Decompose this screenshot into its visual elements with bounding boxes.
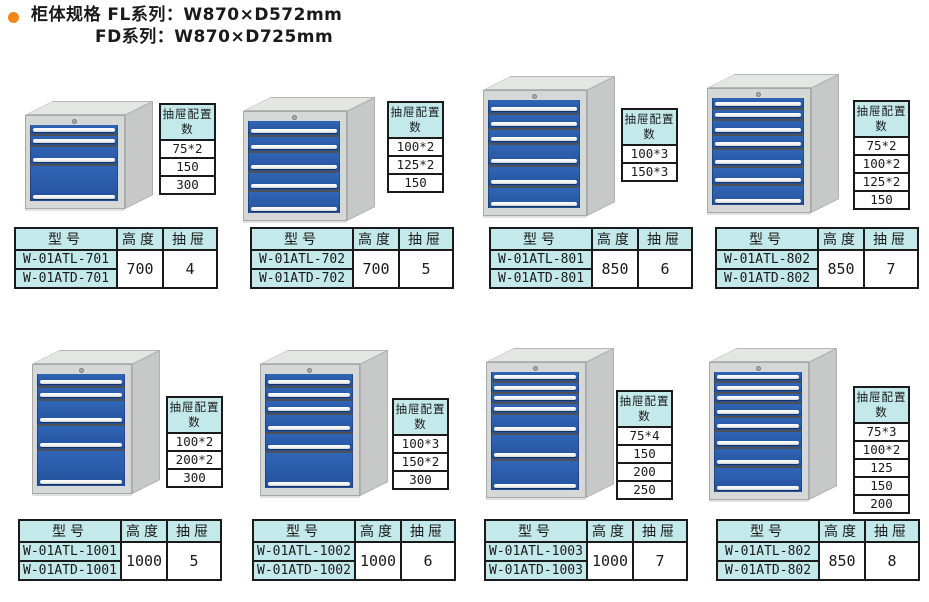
config-value-row: 100*3 xyxy=(623,146,676,164)
spec-table: 型号 高度 抽屉 W-01ATL-1002 1000 6 W-01ATD-100… xyxy=(252,519,456,581)
config-table: 抽屉配置数 75*4150200250 xyxy=(616,390,673,500)
config-table-header: 抽屉配置数 xyxy=(168,398,221,434)
drawer-handle-icon xyxy=(717,386,799,390)
model-b-cell: W-01ATD-802 xyxy=(717,561,819,580)
drawer xyxy=(37,401,125,424)
spec-table: 型号 高度 抽屉 W-01ATL-802 850 8 W-01ATD-802 xyxy=(716,519,920,581)
drawer xyxy=(265,415,353,432)
config-value-row: 75*2 xyxy=(161,141,214,159)
height-column-header: 高度 xyxy=(592,228,638,250)
drawer-stack xyxy=(265,374,353,488)
config-value-row: 300 xyxy=(394,472,447,488)
model-a-cell: W-01ATL-801 xyxy=(490,250,592,269)
height-column-header: 高度 xyxy=(117,228,163,250)
spec-table: 型号 高度 抽屉 W-01ATL-701 700 4 W-01ATD-701 xyxy=(14,227,218,289)
drawer xyxy=(37,374,125,386)
drawer-count-cell: 8 xyxy=(865,542,919,580)
config-value-row: 100*3 xyxy=(394,436,447,454)
drawer xyxy=(491,404,579,413)
drawer xyxy=(488,115,580,128)
cabinet-front-face xyxy=(243,111,347,221)
cabinet-side-face xyxy=(586,348,614,498)
drawer-stack xyxy=(712,98,804,205)
model-a-cell: W-01ATL-1003 xyxy=(485,542,587,561)
drawer xyxy=(714,404,802,416)
cabinet-side-face xyxy=(360,350,388,496)
drawer-handle-icon xyxy=(491,180,577,184)
height-cell: 1000 xyxy=(121,542,167,580)
drawer-stack xyxy=(30,125,118,201)
config-value-row: 100*2 xyxy=(855,156,908,174)
cabinet-illustration-1001 xyxy=(32,350,160,494)
drawer-handle-icon xyxy=(715,178,801,182)
drawer xyxy=(491,383,579,392)
drawer xyxy=(488,167,580,187)
drawer xyxy=(37,426,125,449)
drawer xyxy=(712,110,804,120)
cabinet-front-face xyxy=(25,115,125,209)
drawer xyxy=(248,173,340,191)
drawer-handle-icon xyxy=(251,165,337,169)
drawer xyxy=(30,166,118,201)
drawer-handle-icon xyxy=(251,184,337,188)
config-value-row: 150*2 xyxy=(394,454,447,472)
config-value-row: 75*4 xyxy=(618,428,671,446)
model-column-header: 型号 xyxy=(490,228,592,250)
cabinet-front-face xyxy=(486,362,586,498)
model-column-header: 型号 xyxy=(253,520,355,542)
drawer-count-cell: 6 xyxy=(638,250,692,288)
drawer-handle-icon xyxy=(494,407,576,411)
model-column-header: 型号 xyxy=(19,520,121,542)
cabinet-side-face xyxy=(132,350,160,494)
model-column-header: 型号 xyxy=(251,228,353,250)
drawer xyxy=(37,388,125,400)
drawer-count-cell: 5 xyxy=(167,542,221,580)
config-value-row: 75*3 xyxy=(855,424,908,442)
page-title: 柜体规格 FL系列：W870×D572mm FD系列：W870×D725mm xyxy=(31,4,342,48)
drawer-handle-icon xyxy=(494,386,576,390)
drawer xyxy=(37,451,125,486)
config-value-row: 250 xyxy=(618,482,671,498)
lock-icon xyxy=(292,115,297,120)
spec-table: 型号 高度 抽屉 W-01ATL-1001 1000 5 W-01ATD-100… xyxy=(18,519,222,581)
drawer xyxy=(712,136,804,149)
lock-icon xyxy=(532,94,537,99)
drawer xyxy=(712,168,804,184)
drawer-handle-icon xyxy=(717,441,799,445)
height-cell: 850 xyxy=(818,250,864,288)
drawer xyxy=(265,434,353,451)
cabinet-front-face xyxy=(483,90,587,216)
height-cell: 850 xyxy=(592,250,638,288)
catalog-page: 柜体规格 FL系列：W870×D572mm FD系列：W870×D725mm xyxy=(0,0,929,602)
spec-table: 型号 高度 抽屉 W-01ATL-702 700 5 W-01ATD-702 xyxy=(250,227,454,289)
cabinet-side-face xyxy=(125,101,153,209)
drawer xyxy=(714,372,802,381)
drawer xyxy=(714,418,802,430)
drawer xyxy=(488,100,580,113)
model-column-header: 型号 xyxy=(716,228,818,250)
drawer xyxy=(714,432,802,447)
drawer xyxy=(488,130,580,143)
drawer-handle-icon xyxy=(251,129,337,133)
drawer-handle-icon xyxy=(268,445,350,449)
drawer-handle-icon xyxy=(715,102,801,106)
drawer-handle-icon xyxy=(715,113,801,117)
height-column-header: 高度 xyxy=(819,520,865,542)
drawer-handle-icon xyxy=(33,158,115,162)
drawer xyxy=(488,145,580,165)
drawer-stack xyxy=(714,372,802,492)
drawer xyxy=(488,188,580,208)
config-table-header: 抽屉配置数 xyxy=(161,105,214,141)
model-b-cell: W-01ATD-1002 xyxy=(253,561,355,580)
drawer xyxy=(491,461,579,490)
height-cell: 1000 xyxy=(587,542,633,580)
page-title-line2: FD系列：W870×D725mm xyxy=(31,26,342,48)
lock-icon xyxy=(307,368,312,373)
drawer-handle-icon xyxy=(494,484,576,488)
model-b-cell: W-01ATD-701 xyxy=(15,269,117,288)
config-value-row: 150 xyxy=(618,446,671,464)
config-rows: 75*2100*2125*2150 xyxy=(855,138,908,208)
model-b-cell: W-01ATD-1003 xyxy=(485,561,587,580)
drawer-stack xyxy=(491,372,579,490)
config-table-header: 抽屉配置数 xyxy=(855,388,908,424)
drawer-handle-icon xyxy=(268,426,350,430)
drawer xyxy=(265,388,353,400)
config-rows: 100*2200*2300 xyxy=(168,434,221,486)
config-value-row: 150 xyxy=(389,175,442,191)
model-column-header: 型号 xyxy=(717,520,819,542)
lock-icon xyxy=(72,119,77,124)
lock-icon xyxy=(756,366,761,371)
drawer-handle-icon xyxy=(268,407,350,411)
model-a-cell: W-01ATL-701 xyxy=(15,250,117,269)
drawer xyxy=(265,401,353,413)
drawer-count-cell: 7 xyxy=(864,250,918,288)
cabinet-illustration-702 xyxy=(243,97,375,221)
height-column-header: 高度 xyxy=(353,228,399,250)
config-table: 抽屉配置数 75*3100*2125150200 xyxy=(853,386,910,514)
model-b-cell: W-01ATD-802 xyxy=(716,269,818,288)
drawer-handle-icon xyxy=(715,128,801,132)
spec-table: 型号 高度 抽屉 W-01ATL-802 850 7 W-01ATD-802 xyxy=(715,227,919,289)
drawer-handle-icon xyxy=(33,128,115,132)
config-value-row: 200 xyxy=(855,496,908,512)
drawer-handle-icon xyxy=(268,393,350,397)
drawer-stack xyxy=(37,374,125,486)
drawer-handle-icon xyxy=(717,396,799,400)
config-rows: 75*4150200250 xyxy=(618,428,671,498)
lock-icon xyxy=(533,366,538,371)
drawer xyxy=(248,137,340,151)
cabinet-side-face xyxy=(809,348,837,500)
height-cell: 700 xyxy=(353,250,399,288)
model-a-cell: W-01ATL-802 xyxy=(716,250,818,269)
cabinet-illustration-802-8 xyxy=(709,348,837,500)
height-column-header: 高度 xyxy=(818,228,864,250)
drawer xyxy=(248,192,340,213)
drawer-handle-icon xyxy=(40,418,122,422)
model-column-header: 型号 xyxy=(15,228,117,250)
config-table: 抽屉配置数 100*3150*3 xyxy=(621,108,678,182)
drawer xyxy=(712,98,804,108)
spec-table: 型号 高度 抽屉 W-01ATL-1003 1000 7 W-01ATD-100… xyxy=(484,519,688,581)
config-rows: 75*3100*2125150200 xyxy=(855,424,908,512)
drawer-handle-icon xyxy=(491,107,577,111)
drawer xyxy=(30,136,118,145)
cabinet-illustration-1003 xyxy=(486,348,614,498)
config-value-row: 150 xyxy=(855,478,908,496)
drawer xyxy=(712,121,804,134)
drawer-stack xyxy=(488,100,580,208)
drawer-handle-icon xyxy=(491,122,577,126)
drawer xyxy=(714,468,802,492)
cabinet-side-face xyxy=(587,76,615,216)
height-column-header: 高度 xyxy=(355,520,401,542)
drawer xyxy=(714,383,802,392)
config-table: 抽屉配置数 75*2150300 xyxy=(159,103,216,195)
cabinet-front-face xyxy=(709,362,809,500)
drawer xyxy=(491,415,579,433)
drawer xyxy=(491,372,579,381)
config-table-header: 抽屉配置数 xyxy=(623,110,676,146)
drawers-column-header: 抽屉 xyxy=(633,520,687,542)
drawer-handle-icon xyxy=(268,380,350,384)
config-table-header: 抽屉配置数 xyxy=(855,102,908,138)
drawer xyxy=(712,186,804,205)
height-cell: 700 xyxy=(117,250,163,288)
model-column-header: 型号 xyxy=(485,520,587,542)
height-cell: 1000 xyxy=(355,542,401,580)
config-table: 抽屉配置数 100*2200*2300 xyxy=(166,396,223,488)
spec-table: 型号 高度 抽屉 W-01ATL-801 850 6 W-01ATD-801 xyxy=(489,227,693,289)
lock-icon xyxy=(756,92,761,97)
drawer-handle-icon xyxy=(494,427,576,431)
drawer-count-cell: 7 xyxy=(633,542,687,580)
cabinet-side-face xyxy=(347,97,375,221)
drawers-column-header: 抽屉 xyxy=(864,228,918,250)
config-value-row: 200*2 xyxy=(168,452,221,470)
cabinet-illustration-1002 xyxy=(260,350,388,496)
config-value-row: 125*2 xyxy=(855,174,908,192)
config-table-header: 抽屉配置数 xyxy=(394,400,447,436)
config-value-row: 125*2 xyxy=(389,157,442,175)
cabinet-front-face xyxy=(707,88,811,213)
config-table: 抽屉配置数 75*2100*2125*2150 xyxy=(853,100,910,210)
drawer-handle-icon xyxy=(494,375,576,379)
drawer-handle-icon xyxy=(494,396,576,400)
model-b-cell: W-01ATD-1001 xyxy=(19,561,121,580)
drawer-handle-icon xyxy=(717,486,799,490)
cabinet-illustration-802 xyxy=(707,74,839,213)
config-rows: 100*2125*2150 xyxy=(389,139,442,191)
lock-icon xyxy=(79,368,84,373)
drawers-column-header: 抽屉 xyxy=(401,520,455,542)
config-value-row: 100*2 xyxy=(855,442,908,460)
drawer-handle-icon xyxy=(268,482,350,486)
drawer-handle-icon xyxy=(717,460,799,464)
config-table: 抽屉配置数 100*2125*2150 xyxy=(387,101,444,193)
drawer-handle-icon xyxy=(715,160,801,164)
config-table: 抽屉配置数 100*3150*2300 xyxy=(392,398,449,490)
drawer-handle-icon xyxy=(491,137,577,141)
drawer-handle-icon xyxy=(40,480,122,484)
drawer-handle-icon xyxy=(717,410,799,414)
drawer-handle-icon xyxy=(40,393,122,397)
height-cell: 850 xyxy=(819,542,865,580)
config-value-row: 200 xyxy=(618,464,671,482)
drawer-count-cell: 5 xyxy=(399,250,453,288)
drawer xyxy=(265,453,353,488)
drawers-column-header: 抽屉 xyxy=(638,228,692,250)
drawers-column-header: 抽屉 xyxy=(399,228,453,250)
drawer-handle-icon xyxy=(33,139,115,143)
drawer xyxy=(248,121,340,135)
drawers-column-header: 抽屉 xyxy=(163,228,217,250)
config-value-row: 150 xyxy=(161,159,214,177)
drawers-column-header: 抽屉 xyxy=(167,520,221,542)
config-value-row: 150 xyxy=(855,192,908,208)
model-a-cell: W-01ATL-702 xyxy=(251,250,353,269)
drawer-handle-icon xyxy=(491,202,577,206)
drawer xyxy=(30,125,118,134)
config-rows: 100*3150*2300 xyxy=(394,436,447,488)
cabinet-illustration-701 xyxy=(25,101,153,209)
config-rows: 75*2150300 xyxy=(161,141,214,193)
drawer-handle-icon xyxy=(717,375,799,379)
config-table-header: 抽屉配置数 xyxy=(389,103,442,139)
config-value-row: 100*2 xyxy=(168,434,221,452)
config-value-row: 125 xyxy=(855,460,908,478)
config-rows: 100*3150*3 xyxy=(623,146,676,180)
drawer-handle-icon xyxy=(494,453,576,457)
bullet-icon xyxy=(8,12,19,23)
cabinet-side-face xyxy=(811,74,839,213)
config-value-row: 100*2 xyxy=(389,139,442,157)
height-column-header: 高度 xyxy=(587,520,633,542)
drawer xyxy=(714,394,802,403)
model-b-cell: W-01ATD-702 xyxy=(251,269,353,288)
drawer-handle-icon xyxy=(251,207,337,211)
drawer-handle-icon xyxy=(40,443,122,447)
config-value-row: 300 xyxy=(168,470,221,486)
cabinet-front-face xyxy=(260,364,360,496)
drawer xyxy=(712,150,804,166)
drawer xyxy=(265,374,353,386)
drawer xyxy=(30,147,118,165)
drawer-handle-icon xyxy=(251,145,337,149)
cabinet-front-face xyxy=(32,364,132,494)
model-a-cell: W-01ATL-802 xyxy=(717,542,819,561)
drawer-stack xyxy=(248,121,340,213)
drawer-count-cell: 4 xyxy=(163,250,217,288)
drawer-handle-icon xyxy=(717,424,799,428)
config-value-row: 150*3 xyxy=(623,164,676,180)
drawer-handle-icon xyxy=(715,142,801,146)
model-a-cell: W-01ATL-1002 xyxy=(253,542,355,561)
page-title-line1: 柜体规格 FL系列：W870×D572mm xyxy=(31,4,342,26)
model-b-cell: W-01ATD-801 xyxy=(490,269,592,288)
drawer xyxy=(714,449,802,467)
drawer xyxy=(491,435,579,459)
drawer-handle-icon xyxy=(40,380,122,384)
cabinet-illustration-801 xyxy=(483,76,615,216)
drawer xyxy=(248,153,340,171)
drawer-handle-icon xyxy=(33,195,115,199)
drawer xyxy=(491,394,579,403)
height-column-header: 高度 xyxy=(121,520,167,542)
drawers-column-header: 抽屉 xyxy=(865,520,919,542)
config-value-row: 75*2 xyxy=(855,138,908,156)
drawer-handle-icon xyxy=(491,159,577,163)
model-a-cell: W-01ATL-1001 xyxy=(19,542,121,561)
drawer-handle-icon xyxy=(715,199,801,203)
config-table-header: 抽屉配置数 xyxy=(618,392,671,428)
config-value-row: 300 xyxy=(161,177,214,193)
drawer-count-cell: 6 xyxy=(401,542,455,580)
